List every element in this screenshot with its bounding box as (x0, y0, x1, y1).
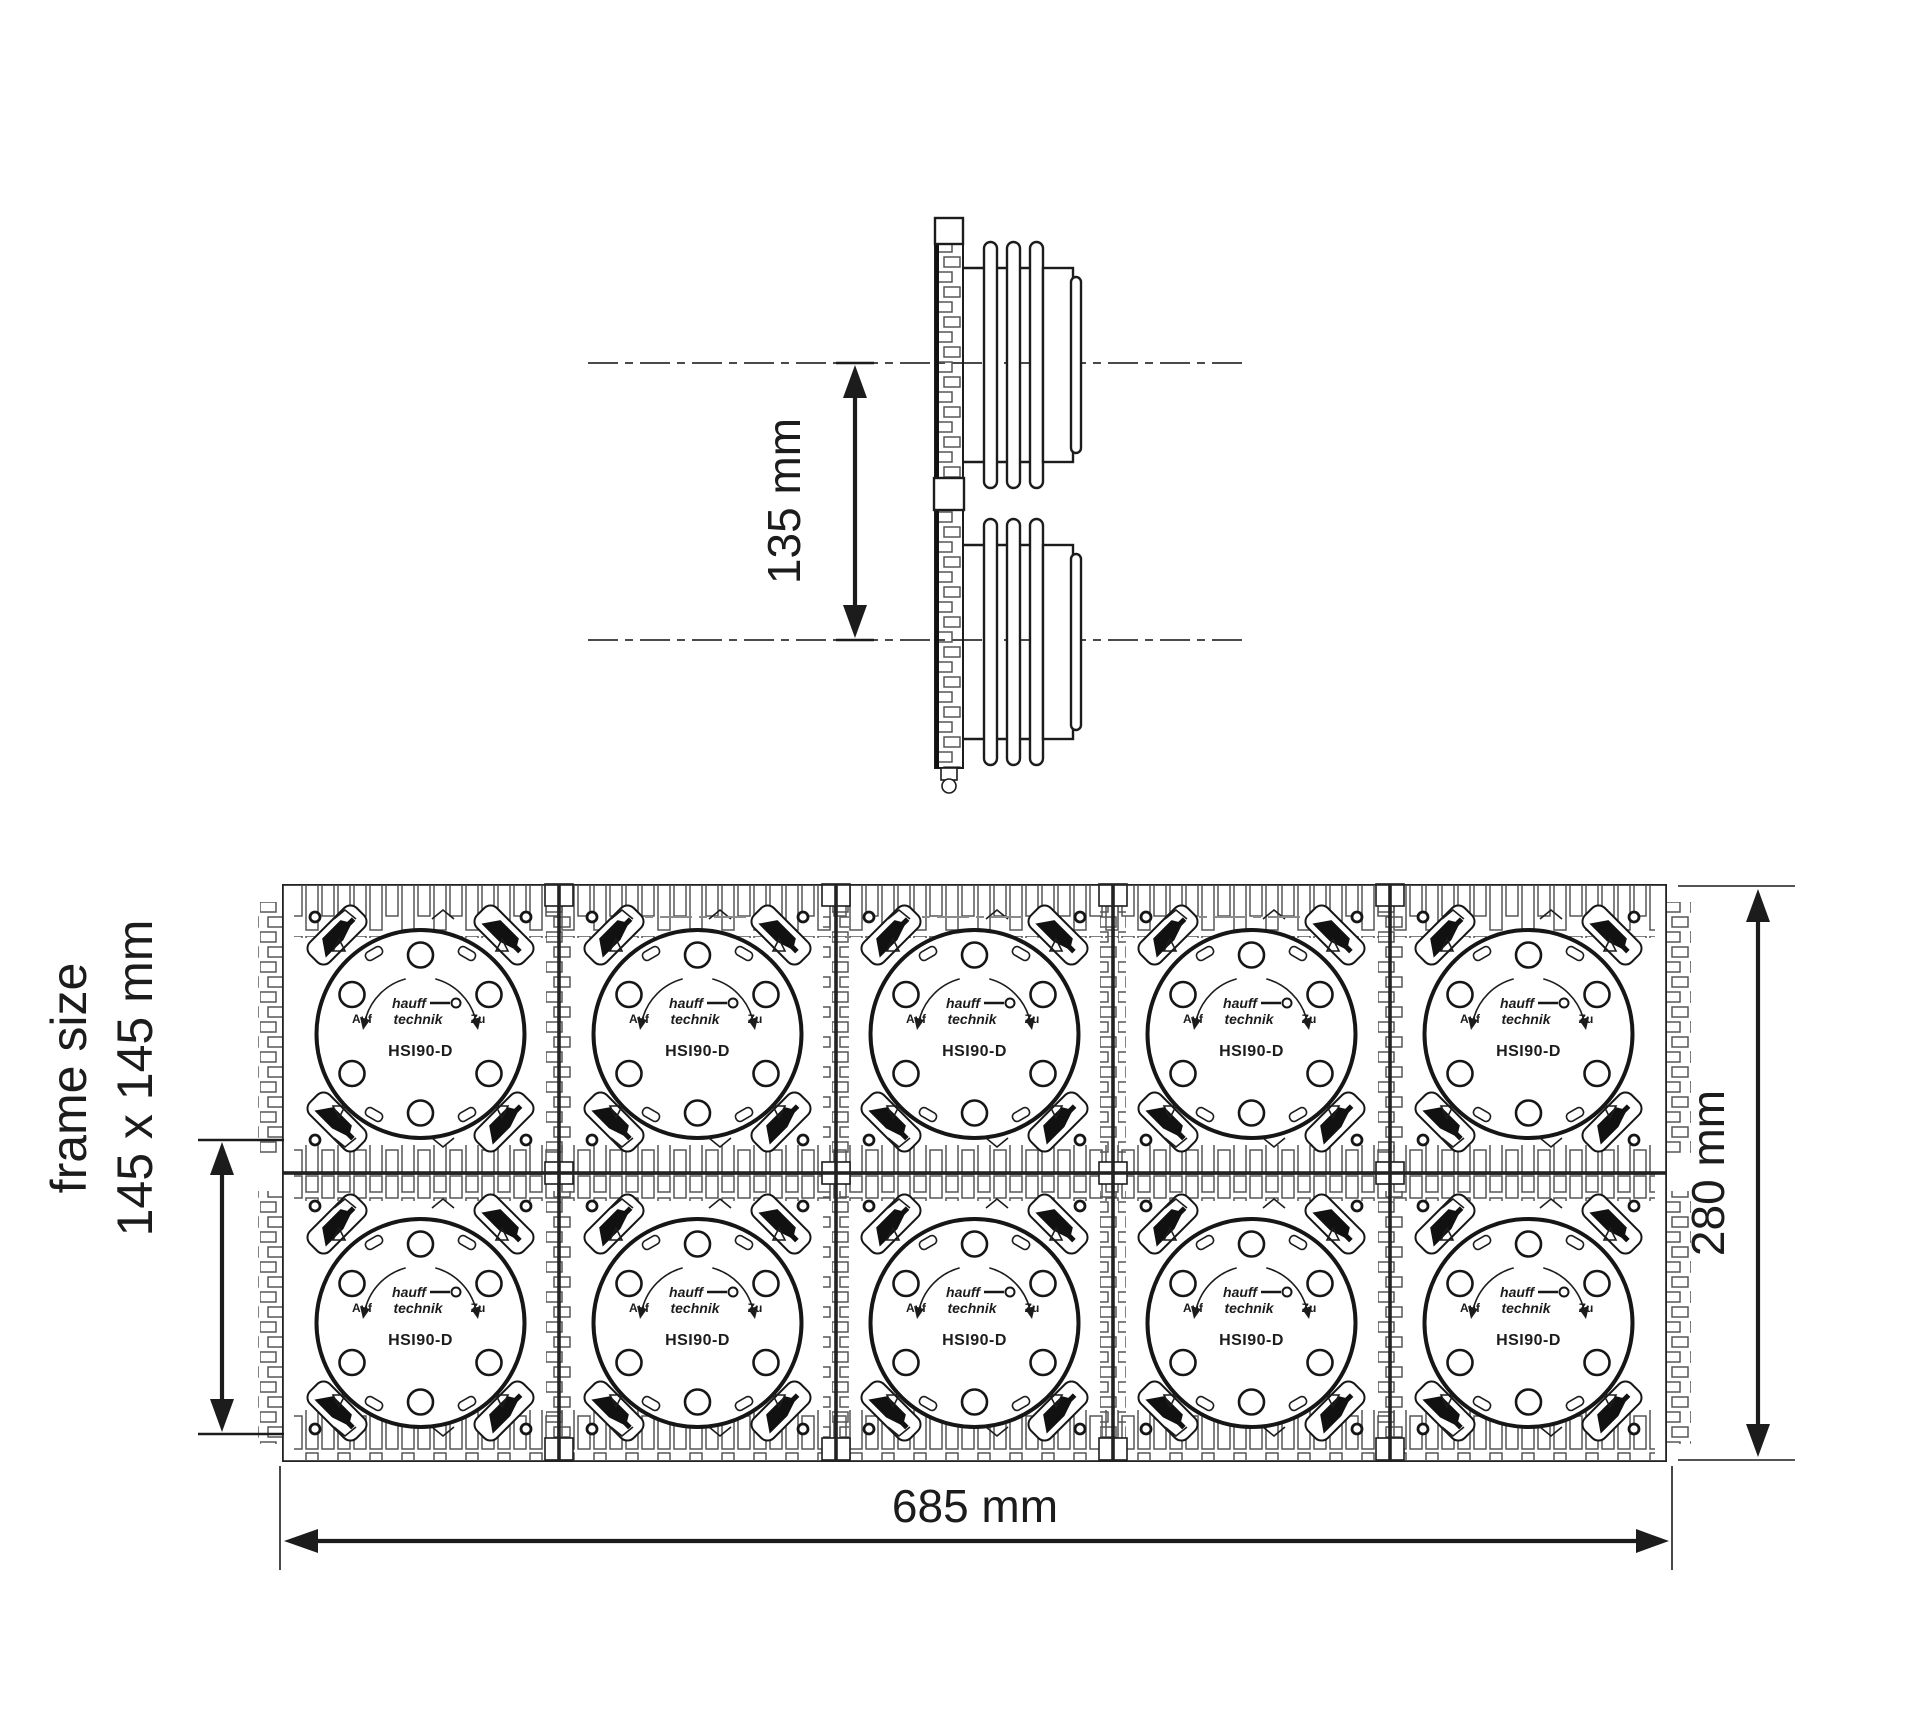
interlock-strip-left (258, 1191, 282, 1444)
seal-cap (1043, 268, 1073, 462)
height-dimension-label: 280 mm (1682, 1090, 1734, 1256)
frame-size-value: 145 x 145 mm (107, 920, 163, 1237)
width-dimension-label: 685 mm (892, 1480, 1058, 1532)
interlock-strip-left (258, 902, 282, 1155)
seal-rib (1030, 242, 1043, 488)
technical-drawing-page: hauff technik Auf Zu HSI90-D (0, 0, 1920, 1717)
seal-rib (1007, 519, 1020, 765)
dimension-135mm-label: 135 mm (758, 418, 810, 584)
drawing-canvas: hauff technik Auf Zu HSI90-D (0, 0, 1920, 1717)
seal-rib (1030, 519, 1043, 765)
frame-size-label: frame size (41, 963, 97, 1194)
seal-rib (984, 519, 997, 765)
seal-rib (984, 242, 997, 488)
seal-cap (1043, 545, 1073, 739)
seal-rib (1007, 242, 1020, 488)
